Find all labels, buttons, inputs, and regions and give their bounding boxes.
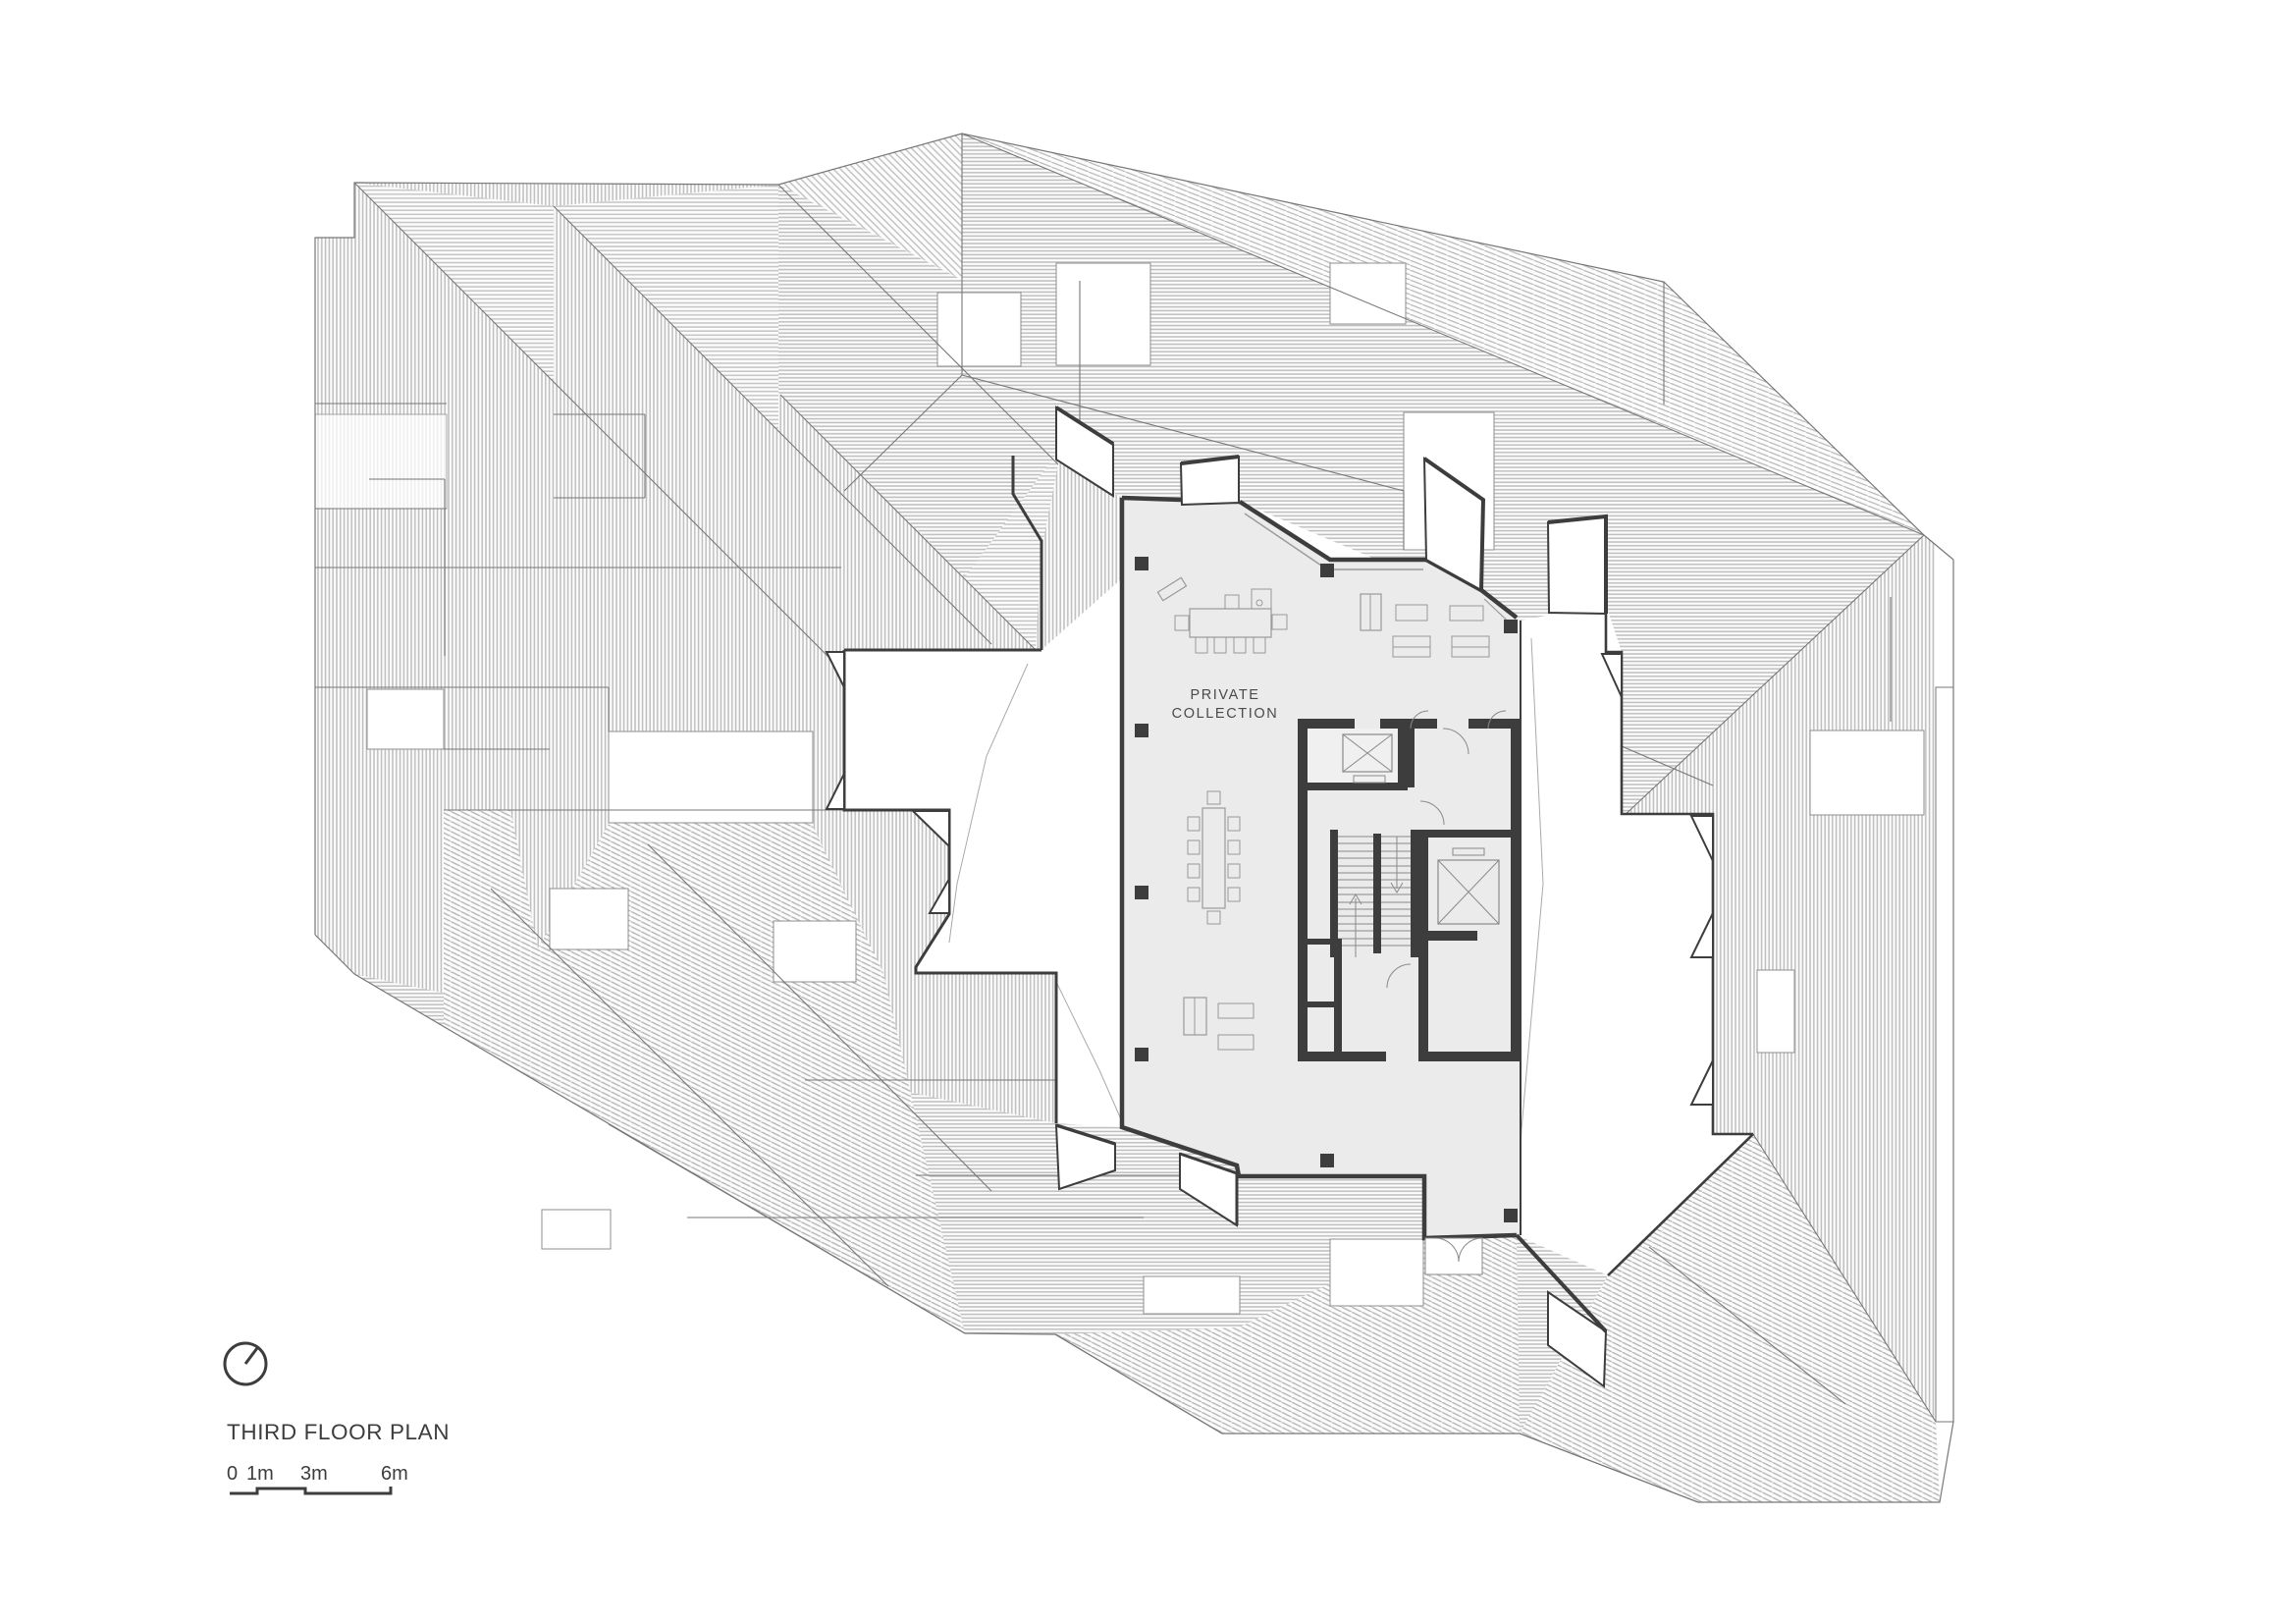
- svg-text:PRIVATE: PRIVATE: [1190, 687, 1259, 703]
- svg-text:6m: 6m: [381, 1463, 408, 1485]
- svg-text:THIRD FLOOR PLAN: THIRD FLOOR PLAN: [227, 1420, 450, 1444]
- svg-text:3m: 3m: [300, 1463, 328, 1485]
- svg-text:1m: 1m: [246, 1463, 274, 1485]
- svg-text:COLLECTION: COLLECTION: [1172, 706, 1279, 722]
- svg-text:0: 0: [227, 1463, 238, 1485]
